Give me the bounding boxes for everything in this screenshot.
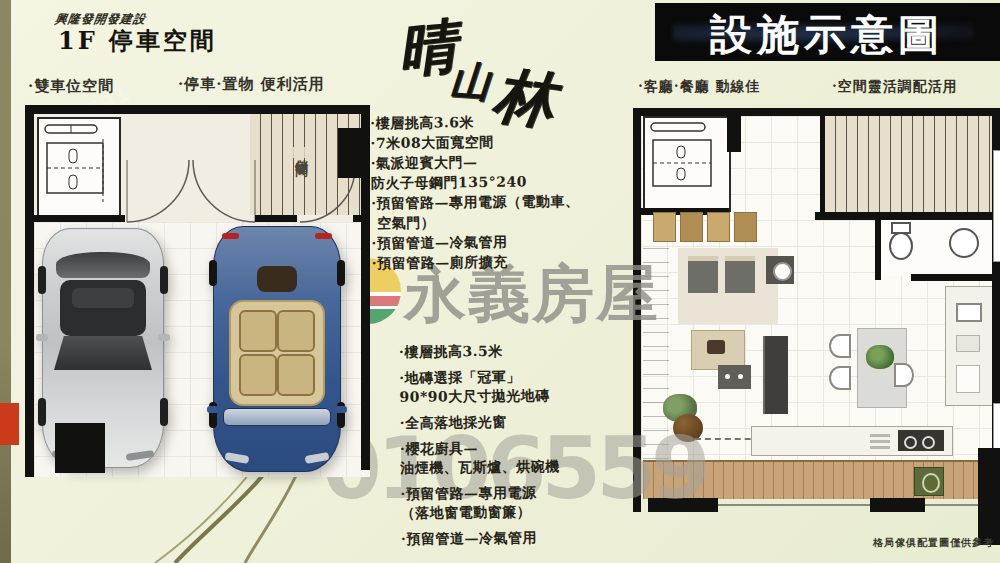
note-line: ·預留管路—專用電源（電動車、 [371, 191, 580, 213]
note-line: 90*90大尺寸拋光地磚 [399, 386, 559, 407]
wheel [38, 398, 46, 426]
side-mirror [207, 406, 219, 413]
garage-floorplan: 儲物間 [25, 105, 370, 477]
convertible-top-view [213, 226, 341, 472]
seat [277, 310, 315, 352]
toilet [889, 232, 913, 260]
wall [25, 105, 34, 477]
footnote: 格局傢俱配置圖僅供參考 [868, 536, 994, 550]
living-notes: ·樓層挑高3.5米 ·地磚選採「冠軍」 90*90大尺寸拋光地磚 ·全高落地採光… [399, 341, 561, 549]
elevator-room [37, 117, 121, 221]
dining-chair [829, 334, 851, 358]
side-mirror [36, 334, 48, 341]
pillar [338, 128, 363, 178]
note-line: ·預留管路—專用電源 [400, 483, 560, 504]
island-table [857, 328, 907, 408]
banner-title: 設施示意圖 [655, 7, 1000, 63]
note-line: ·櫻花廚具— [400, 438, 560, 459]
garage-post [55, 423, 105, 473]
tv-cabinet [763, 336, 788, 414]
note-line: ·地磚選採「冠軍」 [399, 367, 559, 388]
note-line: （落地窗電動窗簾） [401, 502, 561, 523]
deck-planter [914, 467, 944, 496]
page-title-left: 1F 停車空間 [58, 25, 217, 57]
wall-segment [870, 498, 925, 512]
wall [633, 108, 1000, 116]
fridge [956, 365, 980, 393]
living-feature-2: ·空間靈活調配活用 [832, 78, 958, 96]
windshield [54, 336, 152, 370]
interior-wall [820, 116, 825, 214]
dot [725, 374, 730, 379]
console [718, 365, 751, 389]
elevator-machine-drawing [645, 118, 725, 206]
cushion [707, 212, 730, 242]
stove [898, 430, 944, 451]
note-line: ·全高落地採光窗 [400, 412, 560, 433]
burner [922, 436, 935, 449]
side-mirror [335, 406, 347, 413]
note-line: ·7米08大面寬空間 [370, 131, 579, 153]
note-line: ·樓層挑高3.6米 [370, 111, 579, 133]
open-cockpit [229, 300, 325, 406]
interior-wall [815, 212, 992, 220]
counter-module [956, 335, 980, 352]
seat [277, 354, 315, 396]
interior-wall [255, 215, 297, 222]
wheel [38, 266, 46, 294]
lamp [773, 262, 792, 281]
cushion [734, 212, 757, 242]
table-plant [866, 345, 894, 369]
interior-wall [353, 215, 361, 222]
sofa-back-cushions [653, 212, 757, 242]
note-line: 空氣門） [371, 211, 580, 233]
kitchen-counter [945, 286, 994, 406]
note-line: ·氣派迎賓大門— [371, 151, 580, 173]
sunroof [72, 288, 134, 308]
dish-rack [870, 431, 890, 449]
pillar [727, 116, 741, 152]
red-accent-square [0, 403, 19, 445]
sink [949, 228, 979, 258]
burner [904, 436, 917, 449]
facility-banner: 設施示意圖 [655, 3, 1000, 61]
kitchen-counter-lower [751, 426, 953, 456]
wheel [160, 398, 168, 426]
wheel [160, 266, 168, 294]
window [993, 150, 1000, 262]
left-olive-strip [0, 0, 11, 563]
planter-plant [922, 473, 940, 493]
kitchen-sink [956, 303, 982, 322]
rear-window [56, 252, 150, 278]
sofa-seat [725, 256, 755, 293]
windshield [223, 408, 331, 426]
project-name-char-2: 山 [448, 53, 492, 111]
cargo-item [257, 266, 297, 292]
elevator-machine-drawing [39, 119, 115, 215]
elevator-room [643, 116, 731, 212]
cushion [680, 212, 703, 242]
stairs-area [825, 116, 992, 214]
table-decor [707, 340, 725, 354]
dining-chair [894, 363, 914, 387]
wall [25, 105, 370, 114]
wheel [337, 260, 345, 286]
note-line: ·預留管道—冷氣管用 [401, 528, 561, 549]
dot [738, 374, 743, 379]
sofa-seat [688, 256, 718, 293]
dining-chair [829, 366, 851, 390]
seat [239, 354, 277, 396]
living-feature-1: ·客廳·餐廳 動線佳 [638, 78, 761, 96]
garage-feature-2: ·停車·置物 便利活用 [178, 75, 325, 94]
taillight [222, 233, 239, 239]
wheel [209, 260, 217, 286]
garage-notes: ·樓層挑高3.6米 ·7米08大面寬空間 ·氣派迎賓大門— 防火子母鋼門135°… [370, 111, 580, 273]
cushion [653, 212, 676, 242]
side-mirror [158, 334, 170, 341]
note-line: ·樓層挑高3.5米 [399, 341, 559, 362]
seat [239, 310, 277, 352]
entry-door-arcs [115, 125, 365, 225]
note-line: 防火子母鋼門135°240 [371, 171, 580, 193]
note-line: 油煙機、瓦斯爐、烘碗機 [400, 457, 560, 478]
flyer-canvas: 591 興隆發開發建設 1F 停車空間 ·雙車位空間 ·停車·置物 便利活用 設… [0, 0, 1000, 563]
interior-wall [875, 220, 881, 280]
note-line: ·預留管道—冷氣管用 [371, 231, 580, 253]
taillight [315, 233, 332, 239]
note-line: ·預留管路—廁所擴充 [372, 251, 581, 273]
interior-wall [34, 215, 125, 222]
wall-corner [978, 448, 1000, 545]
interior-wall [911, 274, 992, 281]
